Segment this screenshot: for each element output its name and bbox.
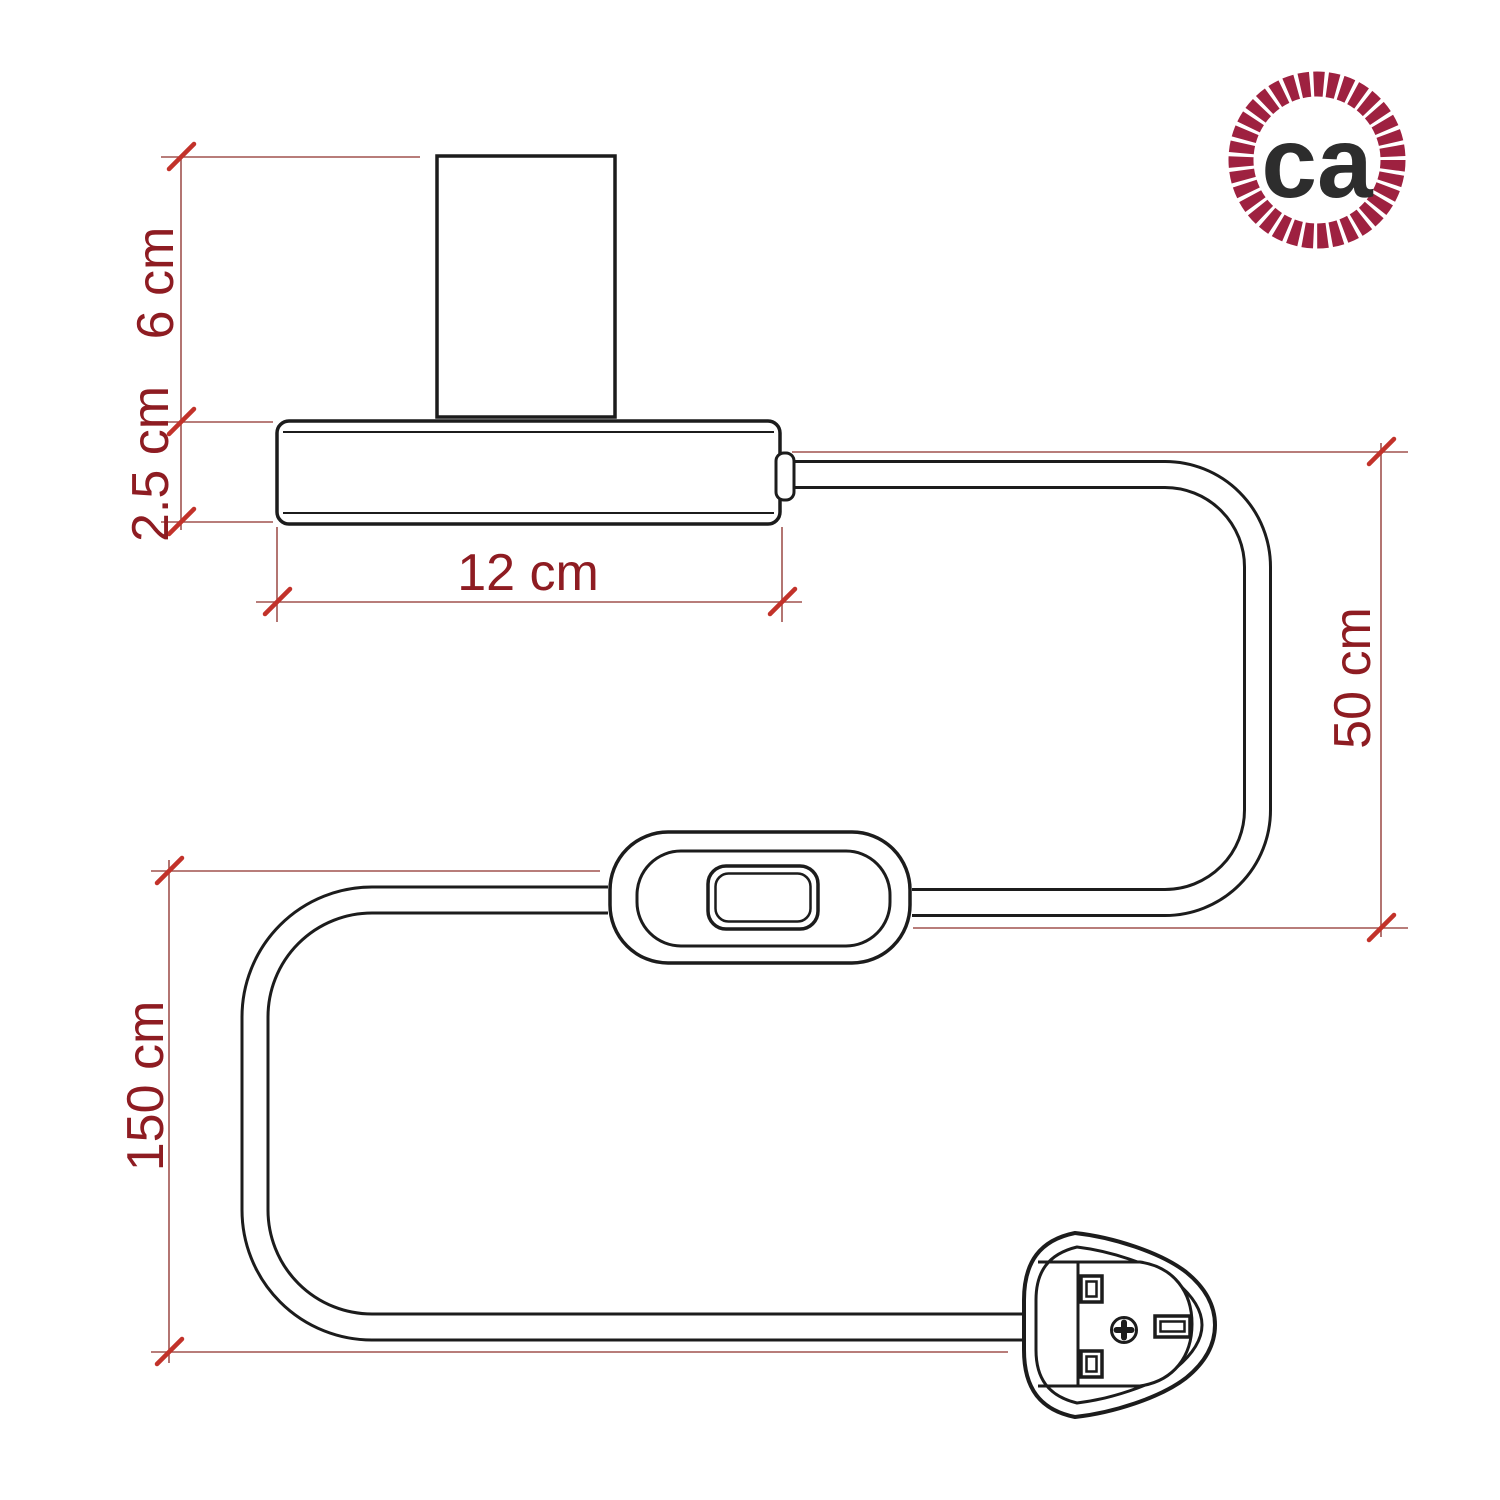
switch-rocker-button bbox=[708, 866, 818, 929]
label-base-width: 12 cm bbox=[457, 544, 599, 602]
lamp-socket-cylinder bbox=[437, 156, 615, 417]
label-socket-height: 6 cm bbox=[127, 227, 185, 340]
cable-lower-run-outline bbox=[255, 900, 1030, 1327]
dimension-diagram: 6 cm 2.5 cm 12 cm 50 cm 150 cm ca bbox=[0, 0, 1500, 1500]
brand-logo: ca bbox=[1241, 84, 1393, 236]
label-base-thickness: 2.5 cm bbox=[122, 386, 180, 542]
lamp-base bbox=[277, 421, 780, 524]
cable-lower-run-core bbox=[255, 900, 1030, 1327]
uk-plug bbox=[1024, 1233, 1215, 1417]
label-cable-switch-to-plug: 150 cm bbox=[117, 1001, 175, 1172]
diagram-svg: 6 cm 2.5 cm 12 cm 50 cm 150 cm ca bbox=[0, 0, 1500, 1500]
dimension-labels: 6 cm 2.5 cm 12 cm 50 cm 150 cm bbox=[117, 227, 1382, 1172]
dimension-lines bbox=[151, 157, 1408, 1363]
label-cable-base-to-switch: 50 cm bbox=[1324, 607, 1382, 749]
plug-pin-bottom bbox=[1081, 1351, 1102, 1377]
lamp bbox=[277, 156, 794, 524]
logo-text: ca bbox=[1261, 107, 1374, 219]
cable-strain-relief bbox=[776, 453, 794, 500]
dimension-ticks bbox=[157, 144, 1394, 1364]
plug-pin-top bbox=[1081, 1276, 1102, 1302]
inline-switch bbox=[610, 832, 910, 963]
